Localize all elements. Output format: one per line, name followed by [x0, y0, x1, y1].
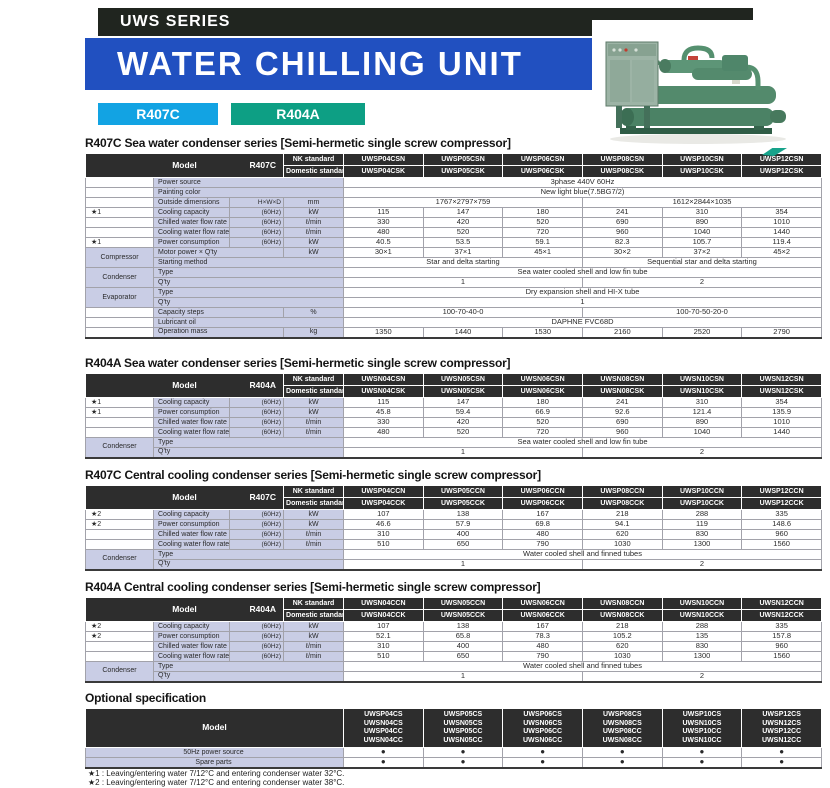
optional-row: Spare parts●●●●●●: [86, 758, 822, 768]
row-unit: ℓ/min: [284, 428, 344, 438]
model-code: UWSP06CSK: [503, 166, 583, 178]
spec-row: Lubricant oilDAPHNE FVC68D: [86, 318, 822, 328]
row-condition: (60Hz): [230, 408, 284, 418]
spec-value: 1: [344, 278, 583, 288]
row-star: ★1: [86, 238, 154, 248]
model-code: UWSN10CCN: [662, 598, 742, 610]
model-code: UWSP08CSN: [582, 154, 662, 166]
section-title: R404A Sea water condenser series [Semi-h…: [85, 356, 822, 370]
model-code: UWSP10CCK: [662, 498, 742, 510]
model-code: UWSN05CC: [424, 737, 503, 746]
row-label: Cooling capacity: [154, 622, 230, 632]
spec-value: Water cooled shell and finned tubes: [344, 662, 822, 672]
spec-value: 310: [662, 208, 742, 218]
spec-value: 180: [503, 398, 583, 408]
catalog-page: UWS SERIES WATER CHILLING UNIT R407C R40…: [0, 0, 830, 788]
row-unit: ℓ/min: [284, 218, 344, 228]
spec-value: 147: [423, 398, 503, 408]
row-condition: (60Hz): [230, 238, 284, 248]
spec-value: Star and delta starting: [344, 258, 583, 268]
spec-value: 167: [503, 510, 583, 520]
row-label: Cooling capacity: [154, 510, 230, 520]
row-star: ★2: [86, 632, 154, 642]
spec-row: Q'ty1: [86, 298, 822, 308]
spec-value: 3phase 440V 60Hz: [344, 178, 822, 188]
model-code: UWSN04CSK: [344, 386, 424, 398]
model-code: UWSN06CC: [503, 737, 582, 746]
spec-value: 720: [503, 428, 583, 438]
spec-value: 241: [582, 208, 662, 218]
row-label: Operation mass: [154, 328, 284, 338]
row-condition: (60Hz): [230, 228, 284, 238]
row-label: Power source: [154, 178, 344, 188]
option-available-dot: ●: [662, 758, 742, 768]
model-code: UWSN12CCN: [742, 598, 822, 610]
spec-value: 1: [344, 298, 822, 308]
spec-value: 310: [344, 530, 424, 540]
row-unit: ℓ/min: [284, 530, 344, 540]
spec-value: 105.7: [662, 238, 742, 248]
model-code: UWSP05CSN: [423, 154, 503, 166]
row-condition: (60Hz): [230, 208, 284, 218]
spec-value: 119: [662, 520, 742, 530]
spec-value: 890: [662, 218, 742, 228]
spec-row: Chilled water flow rate(60Hz)ℓ/min330420…: [86, 218, 822, 228]
spec-value: 1040: [662, 428, 742, 438]
spec-row: ★2Cooling capacity(60Hz)kW10713816721828…: [86, 622, 822, 632]
spec-row: ★1Cooling capacity(60Hz)kW11514718024131…: [86, 208, 822, 218]
row-unit: kW: [284, 398, 344, 408]
row-star: [86, 530, 154, 540]
row-unit: kW: [284, 208, 344, 218]
row-label: Cooling water flow rate: [154, 652, 230, 662]
option-available-dot: ●: [742, 748, 822, 758]
model-code: UWSN08CSK: [582, 386, 662, 398]
model-code-group: UWSP04CSUWSN04CSUWSP04CCUWSN04CC: [344, 709, 424, 748]
model-code: UWSN04CS: [344, 720, 423, 729]
model-header-row: ModelR407CNK standardUWSP04CCNUWSP05CCNU…: [86, 486, 822, 498]
model-code: UWSP06CCK: [503, 498, 583, 510]
row-condition: (60Hz): [230, 652, 284, 662]
spec-value: 1440: [423, 328, 503, 338]
row-star: [86, 308, 154, 318]
spec-value: 1300: [662, 652, 742, 662]
spec-value: 720: [503, 228, 583, 238]
optional-table: ModelUWSP04CSUWSN04CSUWSP04CCUWSN04CCUWS…: [85, 708, 822, 769]
spec-row: Cooling water flow rate(60Hz)ℓ/min480520…: [86, 428, 822, 438]
row-label: Q'ty: [154, 278, 344, 288]
model-code: UWSN06CS: [503, 720, 582, 729]
model-code: UWSP04CSK: [344, 166, 424, 178]
footnote-star1: ★1 : Leaving/entering water 7/12°C and e…: [88, 769, 344, 778]
spec-value: 480: [503, 530, 583, 540]
spec-table-2: ModelR404ANK standardUWSN04CSNUWSN05CSNU…: [85, 373, 822, 459]
table-section-r407c-central-cooling: R407C Central cooling condenser series […: [85, 468, 822, 571]
model-code: UWSN06CCN: [503, 598, 583, 610]
spec-value: Sequential star and delta starting: [582, 258, 821, 268]
spec-value: 45×1: [503, 248, 583, 258]
row-label: Type: [154, 268, 344, 278]
model-code: UWSN12CC: [742, 737, 821, 746]
page-title: WATER CHILLING UNIT: [117, 45, 523, 83]
row-label: Cooling capacity: [154, 398, 230, 408]
spec-row: CondenserTypeSea water cooled shell and …: [86, 268, 822, 278]
model-code: UWSP05CCK: [423, 498, 503, 510]
model-code: UWSN04CCN: [344, 598, 424, 610]
spec-value: 180: [503, 208, 583, 218]
nk-standard-label: NK standard: [284, 486, 344, 498]
spec-row: ★1Cooling capacity(60Hz)kW11514718024131…: [86, 398, 822, 408]
spec-value: 1: [344, 448, 583, 458]
spec-row: Cooling water flow rate(60Hz)ℓ/min510650…: [86, 540, 822, 550]
spec-value: 1: [344, 672, 583, 682]
footnote-star2: ★2 : Leaving/entering water 7/12°C and e…: [88, 778, 344, 787]
refrigerant-label: R404A: [250, 381, 276, 390]
row-condition: (60Hz): [230, 218, 284, 228]
row-unit: ℓ/min: [284, 540, 344, 550]
spec-value: 2790: [742, 328, 822, 338]
model-header-row: ModelR407CNK standardUWSP04CSNUWSP05CSNU…: [86, 154, 822, 166]
spec-value: 420: [423, 418, 503, 428]
section-title: R404A Central cooling condenser series […: [85, 580, 822, 594]
spec-value: 1: [344, 560, 583, 570]
spec-value: 2: [582, 672, 821, 682]
model-code: UWSP04CCN: [344, 486, 424, 498]
row-label: Cooling water flow rate: [154, 428, 230, 438]
spec-value: 2: [582, 448, 821, 458]
spec-value: Dry expansion shell and HI-X tube: [344, 288, 822, 298]
spec-value: 30×1: [344, 248, 424, 258]
model-code: UWSN06CSK: [503, 386, 583, 398]
model-code: UWSN10CSN: [662, 374, 742, 386]
model-code: UWSN10CS: [663, 720, 742, 729]
spec-value: 148.6: [742, 520, 822, 530]
spec-value: Sea water cooled shell and low fin tube: [344, 438, 822, 448]
spec-value: Sea water cooled shell and low fin tube: [344, 268, 822, 278]
group-label: Compressor: [86, 248, 154, 268]
option-available-dot: ●: [503, 748, 583, 758]
spec-value: 650: [423, 652, 503, 662]
model-header-cell: ModelR407C: [86, 154, 284, 178]
spec-value: 1530: [503, 328, 583, 338]
model-code: UWSN04CCK: [344, 610, 424, 622]
row-unit: ℓ/min: [284, 228, 344, 238]
spec-value: 218: [582, 510, 662, 520]
spec-row: ★1Power consumption(60Hz)kW40.553.559.18…: [86, 238, 822, 248]
spec-row: Outside dimensionsH×W×Dmm1767×2797×75916…: [86, 198, 822, 208]
model-code: UWSP05CCN: [423, 486, 503, 498]
model-code: UWSN06CCK: [503, 610, 583, 622]
spec-row: Chilled water flow rate(60Hz)ℓ/min310400…: [86, 642, 822, 652]
spec-value: New light blue(7.5BG7/2): [344, 188, 822, 198]
model-code-group: UWSP05CSUWSN05CSUWSP05CCUWSN05CC: [423, 709, 503, 748]
spec-value: 335: [742, 622, 822, 632]
model-code: UWSN05CS: [424, 720, 503, 729]
spec-value: 790: [503, 540, 583, 550]
spec-value: 167: [503, 622, 583, 632]
group-label: Condenser: [86, 662, 154, 682]
spec-value: 119.4: [742, 238, 822, 248]
spec-value: 30×2: [582, 248, 662, 258]
spec-row: ★2Power consumption(60Hz)kW46.657.969.89…: [86, 520, 822, 530]
spec-row: Q'ty12: [86, 448, 822, 458]
spec-row: EvaporatorTypeDry expansion shell and HI…: [86, 288, 822, 298]
row-condition: (60Hz): [230, 418, 284, 428]
row-condition: (60Hz): [230, 622, 284, 632]
row-label: Starting method: [154, 258, 344, 268]
spec-value: 100-70-40-0: [344, 308, 583, 318]
row-label: Cooling capacity: [154, 208, 230, 218]
spec-value: 1440: [742, 228, 822, 238]
spec-value: 94.1: [582, 520, 662, 530]
row-label: Power consumption: [154, 520, 230, 530]
spec-value: 890: [662, 418, 742, 428]
model-code: UWSP04CSN: [344, 154, 424, 166]
option-available-dot: ●: [662, 748, 742, 758]
spec-value: 830: [662, 530, 742, 540]
row-unit: kg: [284, 328, 344, 338]
model-code: UWSP10CC: [663, 728, 742, 737]
spec-value: Water cooled shell and finned tubes: [344, 550, 822, 560]
spec-value: 115: [344, 208, 424, 218]
model-label: Model: [172, 493, 197, 502]
spec-value: 65.8: [423, 632, 503, 642]
spec-value: 53.5: [423, 238, 503, 248]
row-unit: kW: [284, 510, 344, 520]
spec-value: 1030: [582, 540, 662, 550]
row-label: Cooling water flow rate: [154, 228, 230, 238]
row-label: Chilled water flow rate: [154, 642, 230, 652]
option-available-dot: ●: [423, 748, 503, 758]
spec-value: 135: [662, 632, 742, 642]
row-star: ★1: [86, 408, 154, 418]
spec-value: 520: [503, 218, 583, 228]
spec-value: 520: [423, 428, 503, 438]
spec-value: 107: [344, 510, 424, 520]
row-star: [86, 178, 154, 188]
spec-value: 59.4: [423, 408, 503, 418]
model-code: UWSP06CC: [503, 728, 582, 737]
spec-value: 310: [344, 642, 424, 652]
spec-value: 335: [742, 510, 822, 520]
row-condition: (60Hz): [230, 520, 284, 530]
row-star: [86, 198, 154, 208]
spec-value: 520: [503, 418, 583, 428]
series-label: UWS SERIES: [120, 13, 230, 31]
spec-row: Capacity steps%100-70-40-0100-70-50-20-0: [86, 308, 822, 318]
row-star: [86, 318, 154, 328]
row-condition: (60Hz): [230, 642, 284, 652]
domestic-standard-label: Domestic standard: [284, 386, 344, 398]
spec-value: 960: [742, 530, 822, 540]
row-label: Power consumption: [154, 632, 230, 642]
row-label: Type: [154, 550, 344, 560]
model-code: UWSP08CCK: [582, 498, 662, 510]
spec-value: 1010: [742, 418, 822, 428]
domestic-standard-label: Domestic standard: [284, 166, 344, 178]
spec-value: 310: [662, 398, 742, 408]
model-code: UWSN05CSK: [423, 386, 503, 398]
spec-value: 520: [423, 228, 503, 238]
row-star: [86, 228, 154, 238]
model-code: UWSN05CSN: [423, 374, 503, 386]
spec-row: Power source3phase 440V 60Hz: [86, 178, 822, 188]
row-unit: kW: [284, 622, 344, 632]
model-code: UWSP04CC: [344, 728, 423, 737]
model-header-cell: ModelR407C: [86, 486, 284, 510]
spec-value: 510: [344, 540, 424, 550]
spec-row: Cooling water flow rate(60Hz)ℓ/min480520…: [86, 228, 822, 238]
spec-value: 1040: [662, 228, 742, 238]
spec-value: 107: [344, 622, 424, 632]
model-code: UWSP06CCN: [503, 486, 583, 498]
model-code: UWSP08CCN: [582, 486, 662, 498]
spec-value: 480: [344, 428, 424, 438]
spec-value: 1560: [742, 652, 822, 662]
row-condition: (60Hz): [230, 510, 284, 520]
spec-value: 138: [423, 622, 503, 632]
row-unit: %: [284, 308, 344, 318]
spec-value: 960: [582, 228, 662, 238]
row-label: Cooling water flow rate: [154, 540, 230, 550]
spec-value: 400: [423, 530, 503, 540]
model-code: UWSP10CSN: [662, 154, 742, 166]
spec-value: 37×2: [662, 248, 742, 258]
model-code: UWSP04CCK: [344, 498, 424, 510]
model-code: UWSN04CSN: [344, 374, 424, 386]
model-code: UWSN05CCK: [423, 610, 503, 622]
spec-row: CompressorMotor power × Q'tykW30×137×145…: [86, 248, 822, 258]
model-code: UWSN10CC: [663, 737, 742, 746]
spec-value: 82.3: [582, 238, 662, 248]
row-star: [86, 328, 154, 338]
row-condition: (60Hz): [230, 632, 284, 642]
optional-row: 50Hz power source●●●●●●: [86, 748, 822, 758]
model-code: UWSP08CS: [583, 711, 662, 720]
spec-value: 1350: [344, 328, 424, 338]
spec-value: 1560: [742, 540, 822, 550]
row-label: Outside dimensions: [154, 198, 230, 208]
spec-value: 1030: [582, 652, 662, 662]
row-label: Chilled water flow rate: [154, 218, 230, 228]
spec-value: 480: [344, 228, 424, 238]
spec-value: 690: [582, 218, 662, 228]
row-label: Capacity steps: [154, 308, 284, 318]
spec-row: CondenserTypeSea water cooled shell and …: [86, 438, 822, 448]
nk-standard-label: NK standard: [284, 598, 344, 610]
row-unit: ℓ/min: [284, 642, 344, 652]
badge-r404a: R404A: [231, 103, 365, 125]
model-label: Model: [202, 723, 227, 732]
spec-row: CondenserTypeWater cooled shell and finn…: [86, 662, 822, 672]
spec-value: 1010: [742, 218, 822, 228]
row-label: Power consumption: [154, 408, 230, 418]
group-label: Evaporator: [86, 288, 154, 308]
row-unit: kW: [284, 520, 344, 530]
spec-row: Starting methodStar and delta startingSe…: [86, 258, 822, 268]
spec-value: 2520: [662, 328, 742, 338]
domestic-standard-label: Domestic standard: [284, 498, 344, 510]
row-condition: (60Hz): [230, 540, 284, 550]
row-star: ★1: [86, 208, 154, 218]
model-code: UWSP05CSK: [423, 166, 503, 178]
spec-value: 1612×2844×1035: [582, 198, 821, 208]
spec-value: 40.5: [344, 238, 424, 248]
model-code: UWSP05CS: [424, 711, 503, 720]
spec-value: 135.9: [742, 408, 822, 418]
option-label: 50Hz power source: [86, 748, 344, 758]
model-header-wrap: ModelR407C: [86, 486, 283, 509]
optional-header-row: ModelUWSP04CSUWSN04CSUWSP04CCUWSN04CCUWS…: [86, 709, 822, 748]
spec-value: 138: [423, 510, 503, 520]
row-star: ★2: [86, 622, 154, 632]
refrigerant-label: R407C: [250, 493, 276, 502]
spec-row: Cooling water flow rate(60Hz)ℓ/min510650…: [86, 652, 822, 662]
optional-title: Optional specification: [85, 691, 822, 705]
spec-value: 69.8: [503, 520, 583, 530]
spec-value: 57.9: [423, 520, 503, 530]
row-star: [86, 218, 154, 228]
model-code: UWSN04CC: [344, 737, 423, 746]
spec-value: 66.9: [503, 408, 583, 418]
row-star: ★2: [86, 510, 154, 520]
spec-value: 2: [582, 560, 821, 570]
model-code-group: UWSP12CSUWSN12CSUWSP12CCUWSN12CC: [742, 709, 822, 748]
spec-value: 650: [423, 540, 503, 550]
spec-value: DAPHNE FVC68D: [344, 318, 822, 328]
option-available-dot: ●: [582, 748, 662, 758]
table-section-r407c-sea-water: R407C Sea water condenser series [Semi-h…: [85, 136, 822, 339]
row-label: Lubricant oil: [154, 318, 344, 328]
model-code-group: UWSP08CSUWSN08CSUWSP08CCUWSN08CC: [582, 709, 662, 748]
spec-value: 620: [582, 642, 662, 652]
row-star: [86, 642, 154, 652]
model-code: UWSP10CSK: [662, 166, 742, 178]
spec-value: 46.6: [344, 520, 424, 530]
row-condition: (60Hz): [230, 530, 284, 540]
spec-value: 420: [423, 218, 503, 228]
footnotes: ★1 : Leaving/entering water 7/12°C and e…: [88, 769, 344, 787]
row-label: Q'ty: [154, 298, 344, 308]
table-section-r404a-sea-water: R404A Sea water condenser series [Semi-h…: [85, 356, 822, 459]
spec-value: 105.2: [582, 632, 662, 642]
option-label: Spare parts: [86, 758, 344, 768]
row-label: Type: [154, 438, 344, 448]
option-available-dot: ●: [344, 758, 424, 768]
spec-row: Operation masskg135014401530216025202790: [86, 328, 822, 338]
spec-row: ★2Cooling capacity(60Hz)kW10713816721828…: [86, 510, 822, 520]
spec-table-4: ModelR404ANK standardUWSN04CCNUWSN05CCNU…: [85, 597, 822, 683]
spec-value: 354: [742, 208, 822, 218]
model-code: UWSN08CC: [583, 737, 662, 746]
row-label: Chilled water flow rate: [154, 530, 230, 540]
chiller-unit-illustration: [592, 20, 800, 148]
spec-value: 2160: [582, 328, 662, 338]
model-label: Model: [172, 605, 197, 614]
row-condition: H×W×D: [230, 198, 284, 208]
spec-value: 2: [582, 278, 821, 288]
row-unit: kW: [284, 408, 344, 418]
model-code: UWSN12CSK: [742, 386, 822, 398]
model-code: UWSP08CC: [583, 728, 662, 737]
model-header-wrap: ModelR404A: [86, 374, 283, 397]
spec-value: 92.6: [582, 408, 662, 418]
spec-value: 690: [582, 418, 662, 428]
spec-value: 241: [582, 398, 662, 408]
spec-row: Q'ty12: [86, 278, 822, 288]
spec-value: 218: [582, 622, 662, 632]
section-title: R407C Central cooling condenser series […: [85, 468, 822, 482]
